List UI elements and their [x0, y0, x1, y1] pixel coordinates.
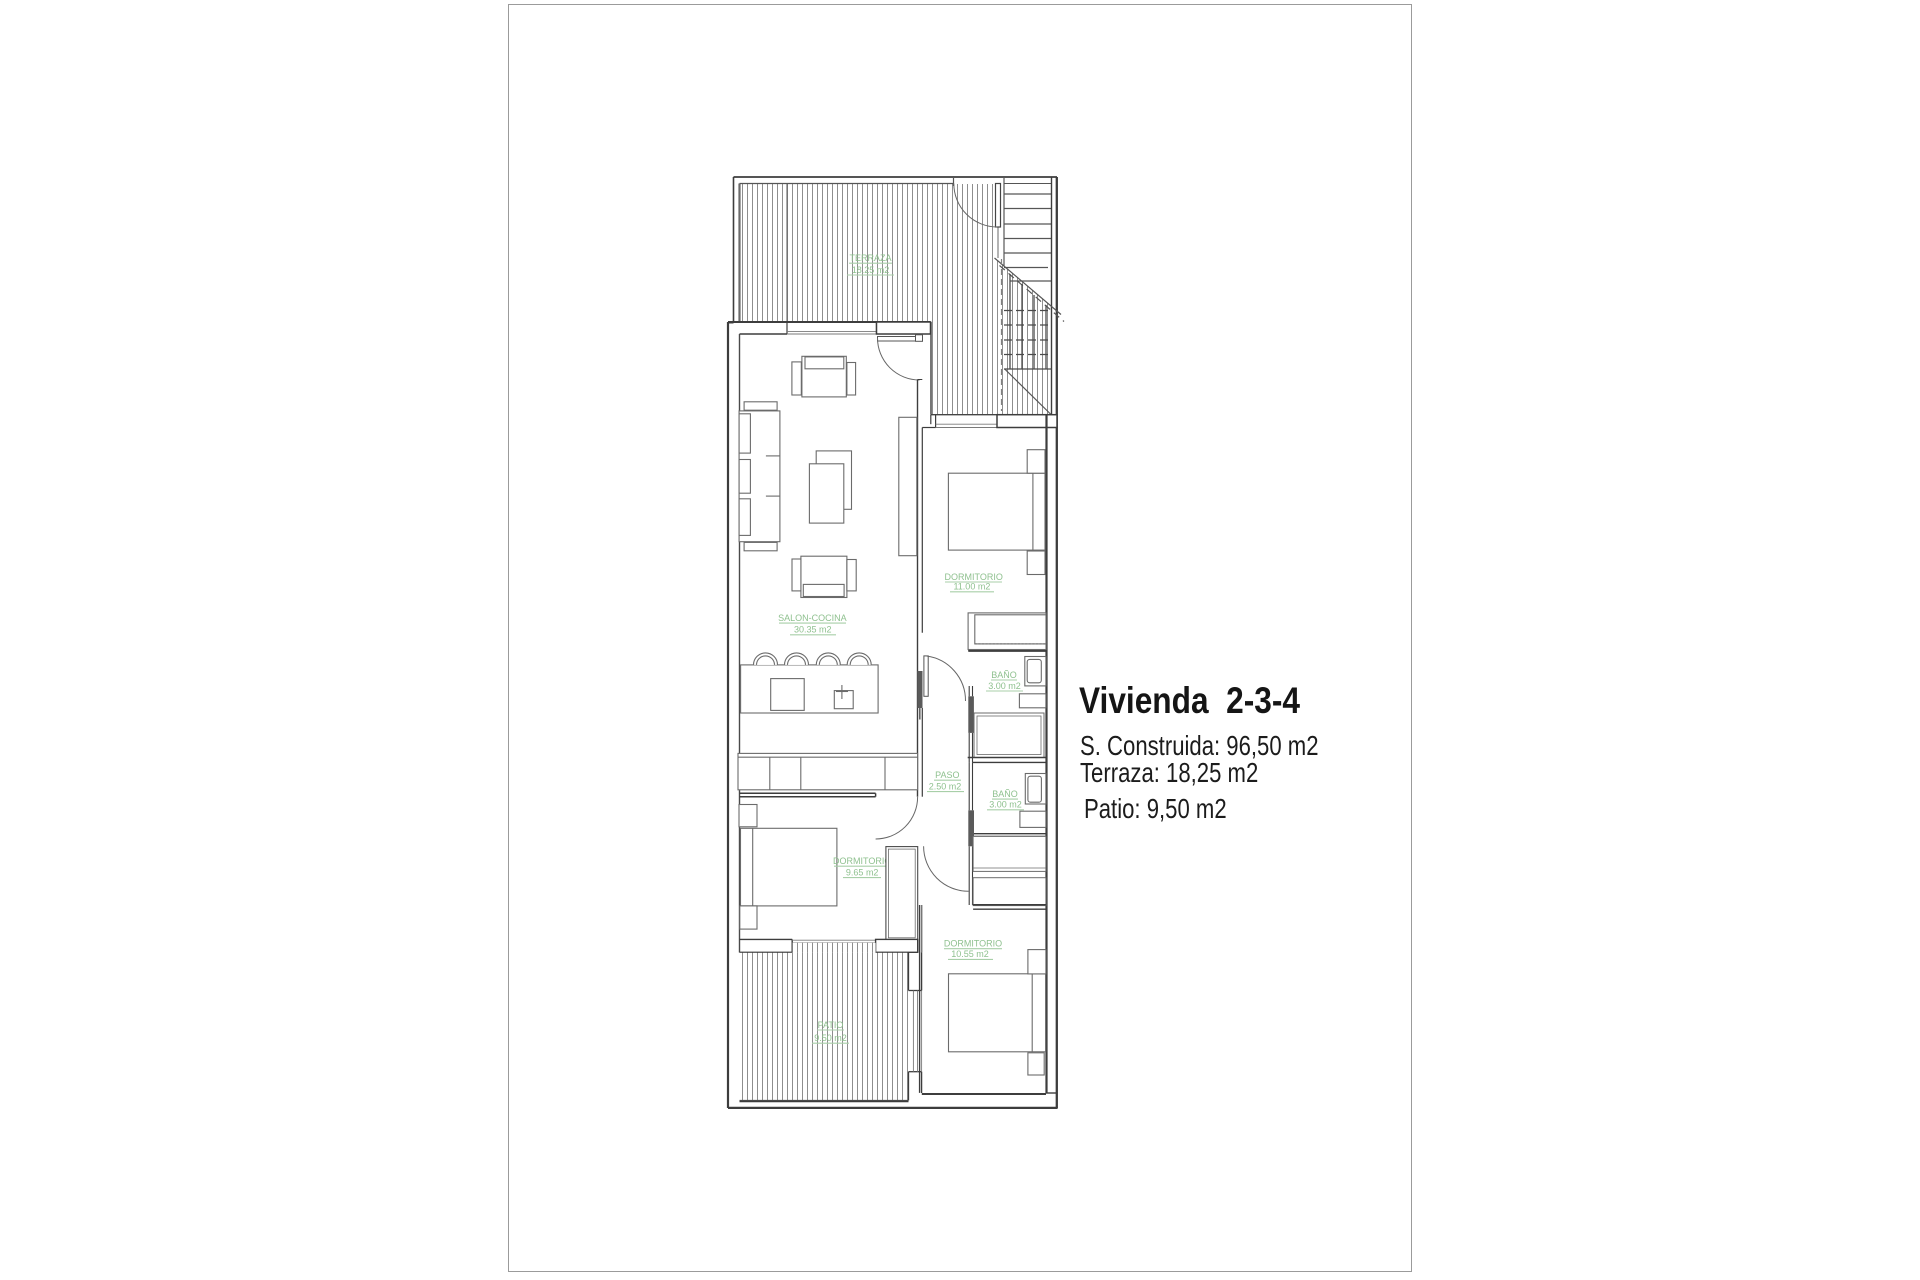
svg-text:3.00 m2: 3.00 m2 — [988, 681, 1021, 691]
svg-text:TERRAZA: TERRAZA — [849, 253, 891, 263]
svg-text:18.25 m2: 18.25 m2 — [852, 265, 890, 275]
svg-text:DORMITORIO: DORMITORIO — [944, 939, 1002, 949]
svg-text:SALON-COCINA: SALON-COCINA — [778, 613, 847, 623]
svg-text:3.00 m2: 3.00 m2 — [989, 800, 1022, 810]
svg-text:DORMITORIO: DORMITORIO — [945, 572, 1003, 582]
svg-text:DORMITORIO: DORMITORIO — [833, 856, 891, 866]
svg-text:2.50 m2: 2.50 m2 — [929, 781, 962, 791]
svg-text:11.00 m2: 11.00 m2 — [953, 582, 990, 592]
svg-text:9.50 m2: 9.50 m2 — [814, 1033, 847, 1043]
svg-text:BAÑO: BAÑO — [992, 789, 1018, 799]
svg-text:BAÑO: BAÑO — [991, 670, 1017, 680]
svg-text:30.35 m2: 30.35 m2 — [794, 625, 832, 635]
svg-text:10.55 m2: 10.55 m2 — [951, 949, 989, 959]
svg-text:9.65 m2: 9.65 m2 — [846, 867, 879, 877]
svg-text:PASO: PASO — [935, 770, 959, 780]
svg-text:PATIO: PATIO — [818, 1020, 844, 1030]
